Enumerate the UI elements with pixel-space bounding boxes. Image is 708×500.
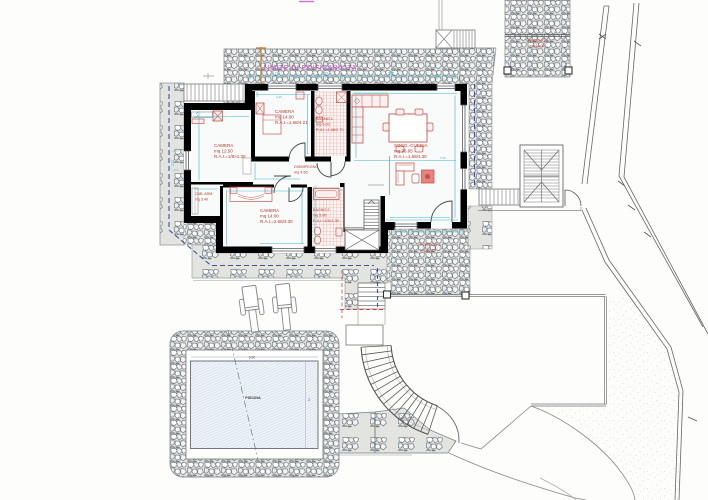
svg-text:BAGNO 1: BAGNO 1 xyxy=(316,117,333,121)
svg-text:2.20: 2.20 xyxy=(171,160,175,166)
svg-text:R.A.I.=1/8>1.30: R.A.I.=1/8>1.30 xyxy=(313,219,339,223)
svg-text:CAB. ARM.: CAB. ARM. xyxy=(195,192,213,196)
svg-text:SOGG.-CUCINA: SOGG.-CUCINA xyxy=(394,143,428,148)
svg-text:PISCINA: PISCINA xyxy=(245,396,261,400)
svg-text:LIMITE DI EDIFICABILITA': LIMITE DI EDIFICABILITA' xyxy=(263,65,358,72)
svg-text:R.A.I.=2.58/4.30: R.A.I.=2.58/4.30 xyxy=(260,219,293,224)
svg-text:mq 26.95: mq 26.95 xyxy=(394,149,413,154)
svg-text:DISIMPEGNO: DISIMPEGNO xyxy=(294,165,318,169)
svg-text:3.30: 3.30 xyxy=(440,156,446,160)
svg-text:R.A.I.=1.68/4.21: R.A.I.=1.68/4.21 xyxy=(275,120,308,125)
svg-text:mq 6.00: mq 6.00 xyxy=(316,123,330,127)
svg-text:CAMERA: CAMERA xyxy=(214,143,233,148)
svg-text:mq 10.10: mq 10.10 xyxy=(420,249,436,253)
svg-text:mq 12.50: mq 12.50 xyxy=(214,149,233,154)
svg-text:BAGNO 2: BAGNO 2 xyxy=(313,208,329,212)
svg-text:mq 14.00: mq 14.00 xyxy=(275,115,294,120)
svg-text:TERRAZZO 2: TERRAZZO 2 xyxy=(526,39,548,43)
svg-text:mq 4.50: mq 4.50 xyxy=(294,171,308,175)
svg-text:4.10: 4.10 xyxy=(276,95,282,99)
svg-text:4.10: 4.10 xyxy=(272,72,278,76)
svg-text:mq 3.40: mq 3.40 xyxy=(195,198,208,202)
svg-text:mq 14.00: mq 14.00 xyxy=(260,214,279,219)
svg-text:5.95: 5.95 xyxy=(388,72,394,76)
svg-text:R.A.I.=1/8>1.30: R.A.I.=1/8>1.30 xyxy=(214,154,246,159)
svg-text:2.35: 2.35 xyxy=(322,72,328,76)
svg-text:6.60: 6.60 xyxy=(249,356,256,360)
svg-text:CAMERA: CAMERA xyxy=(260,208,279,213)
svg-text:mq 14.00: mq 14.00 xyxy=(530,44,545,48)
svg-text:CAMERA: CAMERA xyxy=(275,109,294,114)
svg-text:3: 3 xyxy=(308,398,310,402)
svg-text:R.A.I.=1.68/4.30: R.A.I.=1.68/4.30 xyxy=(394,154,427,159)
svg-text:R.A.I.=1.68/2.70: R.A.I.=1.68/2.70 xyxy=(316,128,344,132)
svg-text:PORTICO 1: PORTICO 1 xyxy=(420,243,440,247)
